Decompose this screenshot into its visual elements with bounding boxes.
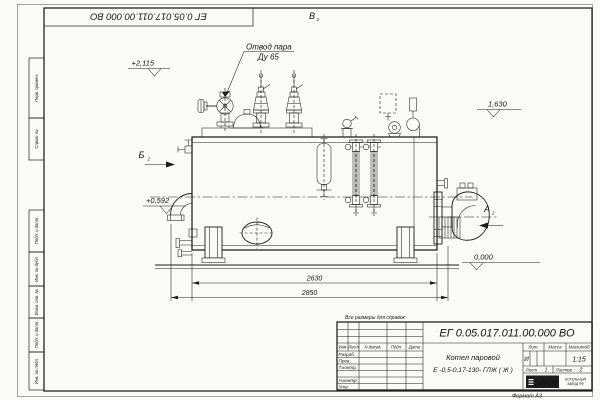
base-frame bbox=[155, 265, 459, 269]
reference-note: Все размеры для справок bbox=[345, 315, 406, 321]
col-list: Лист bbox=[347, 345, 359, 350]
side-nozzle-1 bbox=[176, 239, 192, 248]
view-label-b-ref: 2 bbox=[147, 157, 151, 162]
lit-value: И bbox=[524, 356, 529, 363]
manhole bbox=[240, 218, 275, 249]
col-data: Дата bbox=[408, 345, 421, 350]
elevation-value: 0,000 bbox=[474, 253, 494, 262]
view-label-a-ref: 2 bbox=[491, 211, 495, 216]
dimension-value: 2850 bbox=[301, 290, 318, 297]
elevation-mark-0000: 0,000 bbox=[462, 253, 540, 271]
front-port bbox=[189, 229, 197, 237]
support-leg-left bbox=[202, 227, 225, 263]
callout-text-line1: Отвод пара bbox=[246, 43, 292, 52]
view-label-v-ref: 2 bbox=[316, 17, 320, 22]
front-drain-tap bbox=[178, 140, 193, 153]
steam-outlet-valve bbox=[198, 88, 233, 133]
kvzr-logo: KVZR bbox=[526, 376, 559, 389]
product-name-line2: Е -0,5-0,17-130- ГЛЖ ( Ж ) bbox=[433, 367, 513, 374]
steam-outlet-callout: Отвод пара Ду 65 bbox=[222, 43, 294, 98]
masshtab-value: 1:15 bbox=[572, 357, 586, 364]
callout-text-line2: Ду 65 bbox=[257, 53, 279, 62]
view-arrow-a: А 2 bbox=[479, 204, 503, 229]
safety-valve-1 bbox=[253, 70, 270, 133]
water-gauge-glass-2 bbox=[363, 134, 381, 216]
elevation-mark-0592: +0,592 bbox=[143, 196, 186, 214]
margin-label-podp-data-2: Подп. и дата bbox=[34, 321, 39, 348]
massa-label: Масса bbox=[548, 345, 562, 350]
masshtab-label: Масштаб bbox=[568, 345, 589, 350]
col-izm: Изм bbox=[339, 345, 347, 350]
list-label: Лист bbox=[525, 367, 538, 372]
title-block: ЕГ 0.05.017.011.00.000 ВО Котел паровой … bbox=[337, 322, 592, 390]
top-rotated-stamp: ЕГ 0.05.017.011.00.000 ВО bbox=[44, 8, 253, 26]
margin-label-inv-dubl: Инв. № дубл. bbox=[34, 256, 39, 282]
elevation-mark-2115: +2,115 bbox=[128, 59, 170, 77]
left-margin-stamps: Перв. примен. Справ. № Подп. и дата Инв.… bbox=[29, 58, 44, 390]
level-column bbox=[317, 134, 332, 200]
row-utv: Утв. bbox=[339, 385, 349, 390]
side-nozzle-2 bbox=[178, 250, 192, 257]
margin-label-sprav-no: Справ. № bbox=[34, 129, 39, 148]
logo-text: KVZR bbox=[538, 380, 557, 387]
view-arrow-v: В 2 bbox=[309, 11, 320, 22]
elevation-value: +2,115 bbox=[132, 59, 155, 68]
elevation-value: +0,592 bbox=[146, 196, 170, 205]
support-leg-right bbox=[394, 227, 417, 263]
company-line2: ЗАВОД РФ bbox=[567, 382, 584, 386]
view-label-v: В bbox=[309, 11, 315, 21]
margin-label-podp-data-1: Подп. и дата bbox=[34, 217, 39, 244]
dimension-value: 2630 bbox=[306, 276, 323, 283]
top-stub-valve bbox=[341, 116, 358, 138]
top-stamp-doc-number: ЕГ 0.05.017.011.00.000 ВО bbox=[90, 11, 207, 22]
view-label-b: Б bbox=[139, 150, 145, 160]
row-razrab: Разраб. bbox=[339, 352, 356, 357]
col-docum: N докум. bbox=[365, 345, 382, 350]
product-name-line1: Котел паровой bbox=[446, 353, 501, 362]
elevation-value: 1,630 bbox=[488, 100, 508, 109]
dome-hatch bbox=[231, 110, 263, 129]
level-sensor-phantom bbox=[380, 94, 396, 121]
row-tkontr: Т.контр. bbox=[339, 365, 358, 370]
view-label-a: А bbox=[483, 204, 490, 214]
drawing-sheet: ЕГ 0.05.017.011.00.000 ВО Перв. примен. … bbox=[0, 0, 600, 400]
top-platform bbox=[202, 128, 312, 137]
col-podp: Подп. bbox=[391, 345, 402, 350]
format-label: Формат А3 bbox=[512, 394, 543, 400]
boiler-general-view-drawing: ЕГ 0.05.017.011.00.000 ВО Перв. примен. … bbox=[0, 0, 600, 400]
view-arrow-b: Б 2 bbox=[139, 150, 176, 168]
row-prov: Пров. bbox=[339, 359, 351, 364]
row-nkontr: Н.контр. bbox=[339, 378, 358, 383]
temperature-probe bbox=[407, 98, 420, 137]
listov-value: 2 bbox=[579, 367, 583, 373]
margin-label-inv-podl: Инв. № подл. bbox=[34, 358, 39, 384]
list-value: 1 bbox=[545, 367, 548, 373]
rear-stub bbox=[437, 179, 448, 189]
elevation-mark-1630: 1,630 bbox=[477, 100, 521, 118]
margin-label-perv-primen: Перв. примен. bbox=[34, 74, 39, 102]
safety-valve-2 bbox=[286, 70, 303, 133]
lifting-lug bbox=[389, 122, 401, 137]
lit-label: Лит. bbox=[527, 345, 539, 350]
title-doc-number: ЕГ 0.05.017.011.00.000 ВО bbox=[439, 328, 575, 340]
feed-elbow-pipe bbox=[168, 194, 193, 221]
margin-label-vzam-inv: Взам. инв. № bbox=[34, 289, 39, 315]
listov-label: Листов bbox=[555, 367, 573, 372]
water-gauge-glass-1 bbox=[345, 134, 363, 216]
company-line1: КОТЕЛЬНЫЙ bbox=[565, 378, 586, 382]
